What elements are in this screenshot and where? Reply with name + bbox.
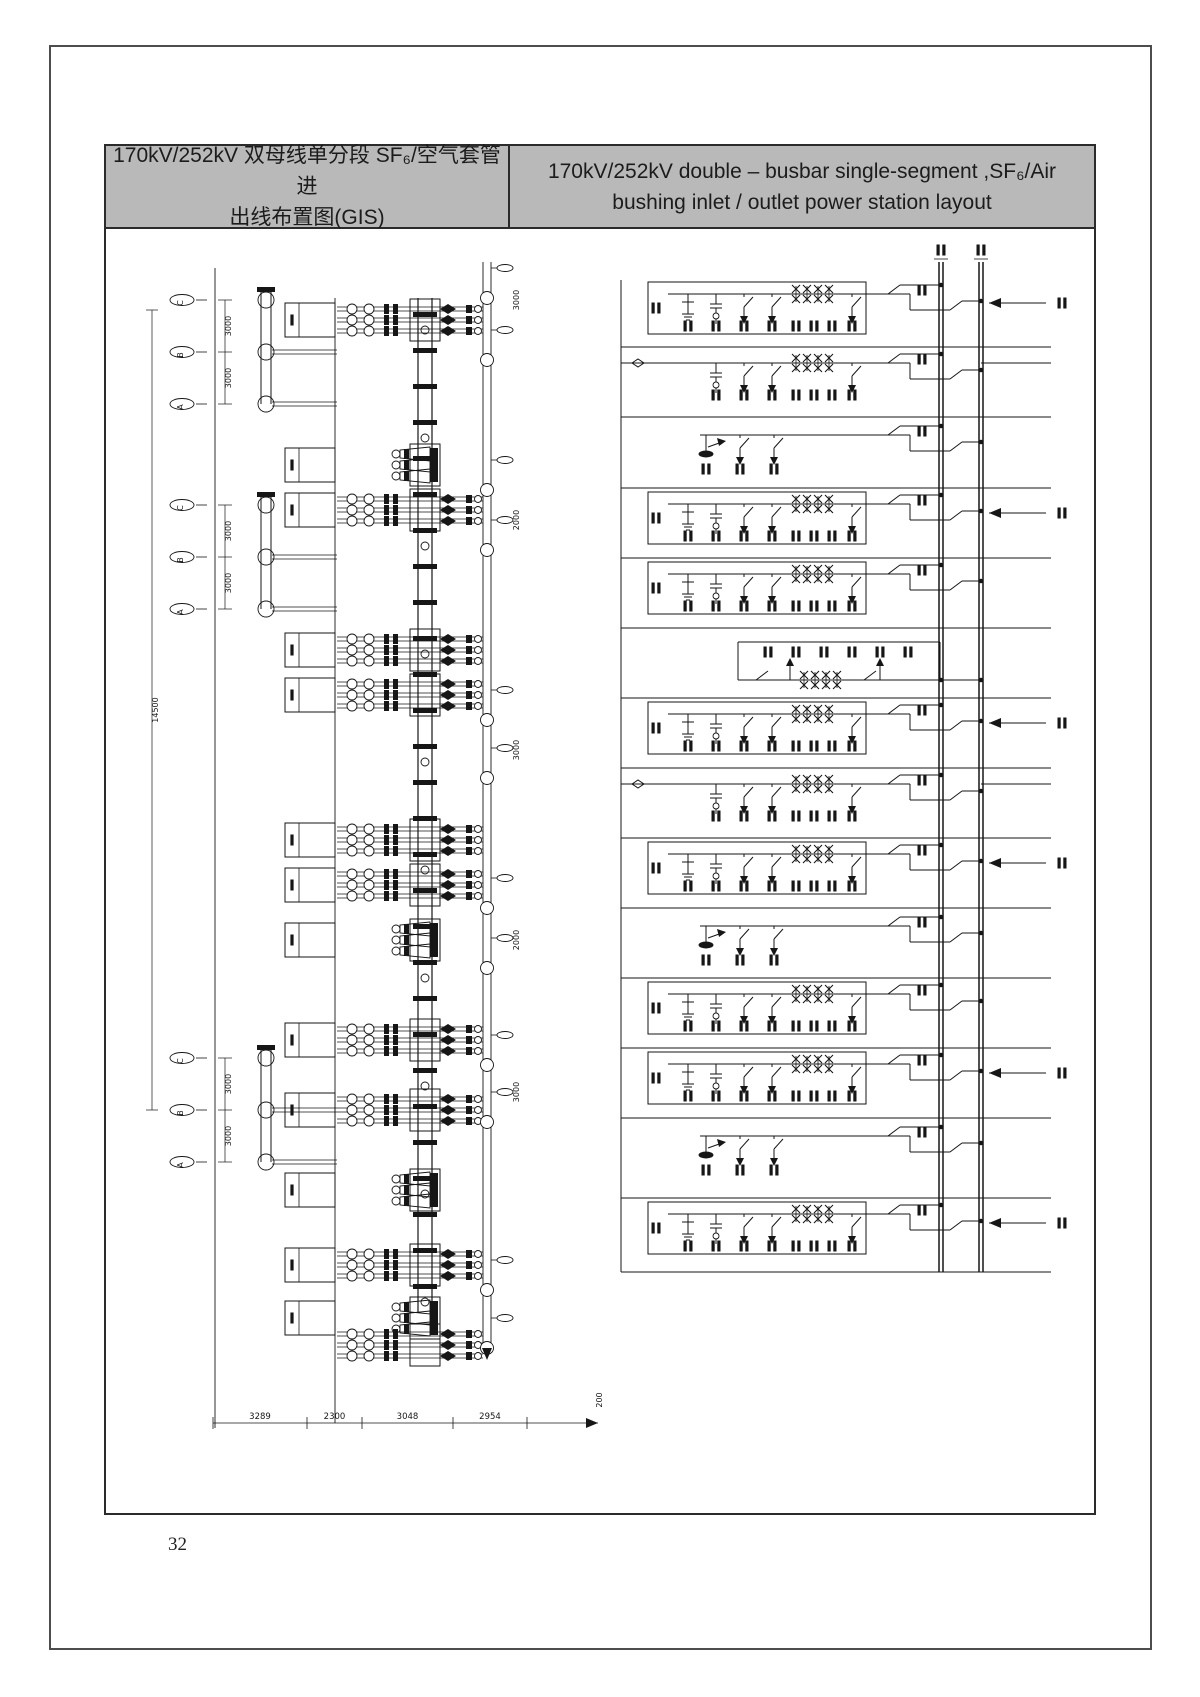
document-page: 170kV/252kV 双母线单分段 SF₆/空气套管进 出线布置图(GIS) … xyxy=(0,0,1200,1697)
title-english-line2: bushing inlet / outlet power station lay… xyxy=(510,187,1094,218)
drawing-frame xyxy=(104,144,1096,1515)
title-chinese-line1: 170kV/252kV 双母线单分段 SF₆/空气套管进 xyxy=(106,140,508,202)
page-number: 32 xyxy=(168,1534,187,1556)
title-english-line1: 170kV/252kV double – busbar single-segme… xyxy=(510,156,1094,187)
title-block: 170kV/252kV 双母线单分段 SF₆/空气套管进 出线布置图(GIS) … xyxy=(104,144,1096,229)
title-chinese: 170kV/252kV 双母线单分段 SF₆/空气套管进 出线布置图(GIS) xyxy=(106,146,510,227)
title-chinese-line2: 出线布置图(GIS) xyxy=(106,202,508,233)
title-english: 170kV/252kV double – busbar single-segme… xyxy=(510,146,1094,227)
